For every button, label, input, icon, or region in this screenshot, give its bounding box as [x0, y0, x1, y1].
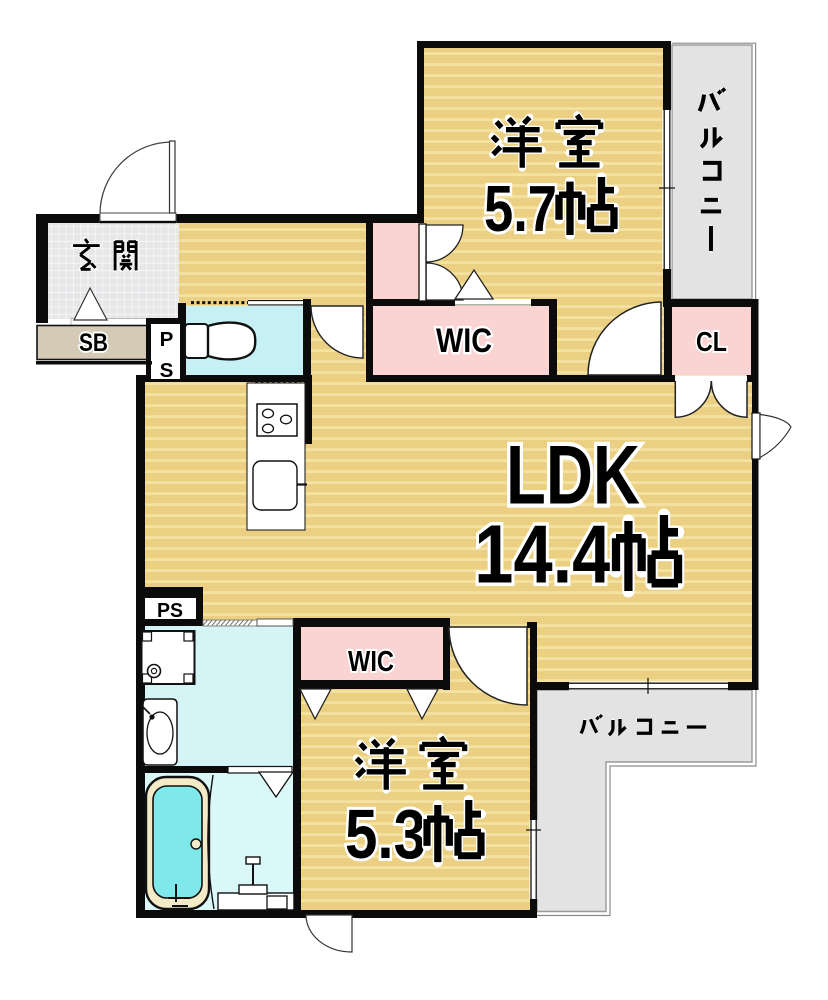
svg-text:14.4: 14.4 [474, 509, 611, 600]
svg-text:WIC: WIC [348, 645, 394, 678]
svg-text:PS: PS [157, 600, 183, 623]
svg-text:S: S [160, 359, 174, 382]
svg-text:WIC: WIC [436, 321, 492, 360]
svg-text:SB: SB [79, 328, 108, 356]
svg-text:5.3: 5.3 [345, 795, 426, 873]
svg-text:5.7: 5.7 [484, 174, 557, 245]
svg-text:P: P [160, 328, 174, 351]
svg-text:LDK: LDK [506, 428, 640, 522]
svg-text:CL: CL [696, 327, 727, 357]
